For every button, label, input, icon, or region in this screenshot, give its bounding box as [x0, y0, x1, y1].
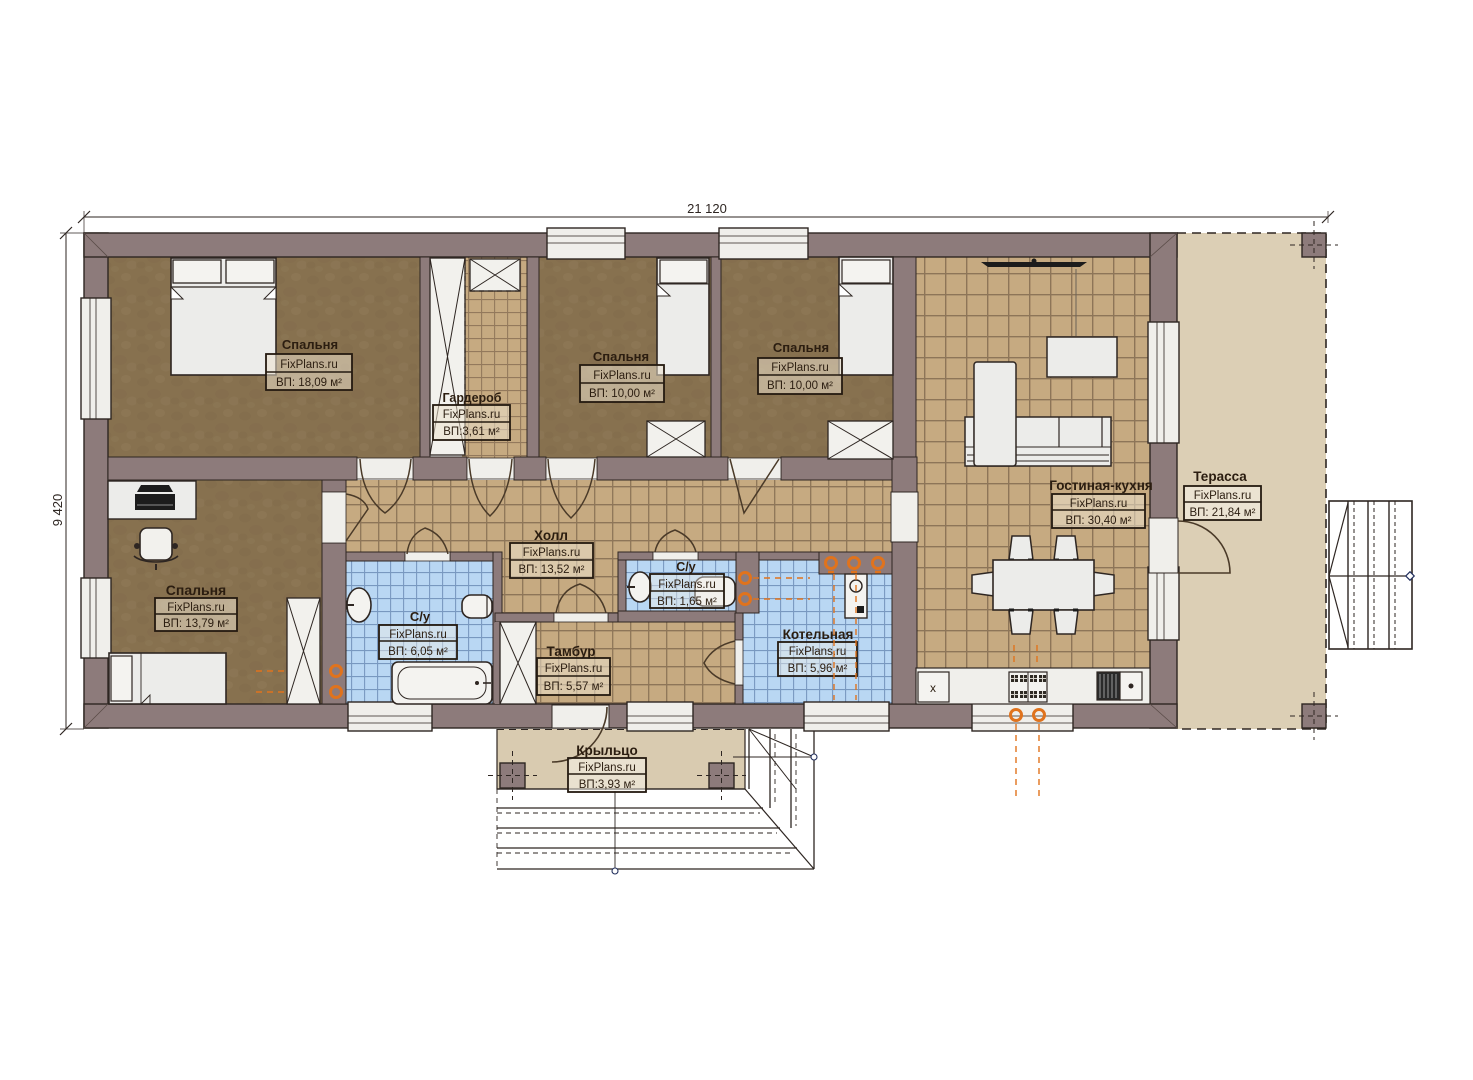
- svg-text:ВП: 18,09 м²: ВП: 18,09 м²: [276, 377, 342, 389]
- svg-text:Гардероб: Гардероб: [442, 391, 501, 405]
- svg-text:Спальня: Спальня: [593, 349, 649, 364]
- svg-text:Гостиная-кухня: Гостиная-кухня: [1049, 478, 1152, 493]
- svg-text:9 420: 9 420: [50, 494, 65, 527]
- svg-text:FixPlans.ru: FixPlans.ru: [593, 370, 651, 382]
- svg-text:Холл: Холл: [534, 528, 568, 543]
- svg-text:ВП: 13,52 м²: ВП: 13,52 м²: [518, 564, 584, 576]
- svg-text:FixPlans.ru: FixPlans.ru: [280, 359, 338, 371]
- svg-text:Спальня: Спальня: [282, 337, 338, 352]
- svg-text:ВП: 5,96 м²: ВП: 5,96 м²: [788, 663, 848, 675]
- svg-text:Спальня: Спальня: [773, 340, 829, 355]
- svg-text:FixPlans.ru: FixPlans.ru: [578, 762, 636, 774]
- svg-text:С/у: С/у: [676, 560, 696, 574]
- svg-text:Спальня: Спальня: [166, 582, 226, 598]
- svg-text:С/у: С/у: [410, 609, 431, 624]
- svg-text:ВП: 5,57 м²: ВП: 5,57 м²: [544, 681, 604, 693]
- svg-text:FixPlans.ru: FixPlans.ru: [167, 602, 225, 614]
- svg-text:FixPlans.ru: FixPlans.ru: [443, 409, 501, 421]
- svg-text:Тамбур: Тамбур: [547, 644, 596, 659]
- svg-text:ВП: 6,05 м²: ВП: 6,05 м²: [388, 646, 448, 658]
- svg-text:FixPlans.ru: FixPlans.ru: [789, 646, 847, 658]
- svg-text:Терасса: Терасса: [1193, 469, 1247, 484]
- svg-text:Крыльцо: Крыльцо: [576, 743, 637, 758]
- svg-text:ВП: 1,65 м²: ВП: 1,65 м²: [657, 596, 717, 608]
- svg-text:x: x: [930, 681, 936, 695]
- svg-text:ВП: 30,40 м²: ВП: 30,40 м²: [1065, 515, 1131, 527]
- svg-text:FixPlans.ru: FixPlans.ru: [523, 547, 581, 559]
- svg-text:ВП: 13,79 м²: ВП: 13,79 м²: [163, 618, 229, 630]
- svg-text:FixPlans.ru: FixPlans.ru: [771, 362, 829, 374]
- svg-text:FixPlans.ru: FixPlans.ru: [658, 579, 716, 591]
- svg-text:ВП: 21,84 м²: ВП: 21,84 м²: [1189, 507, 1255, 519]
- svg-text:FixPlans.ru: FixPlans.ru: [389, 629, 447, 641]
- svg-text:FixPlans.ru: FixPlans.ru: [545, 663, 603, 675]
- svg-text:FixPlans.ru: FixPlans.ru: [1194, 490, 1252, 502]
- svg-text:ВП: 10,00 м²: ВП: 10,00 м²: [767, 380, 833, 392]
- svg-text:ВП:3,93 м²: ВП:3,93 м²: [579, 779, 636, 791]
- svg-text:ВП: 10,00 м²: ВП: 10,00 м²: [589, 388, 655, 400]
- svg-text:21 120: 21 120: [687, 201, 727, 216]
- svg-text:ВП:3,61 м²: ВП:3,61 м²: [443, 426, 500, 438]
- svg-text:FixPlans.ru: FixPlans.ru: [1070, 498, 1128, 510]
- svg-text:Котельная: Котельная: [783, 627, 854, 642]
